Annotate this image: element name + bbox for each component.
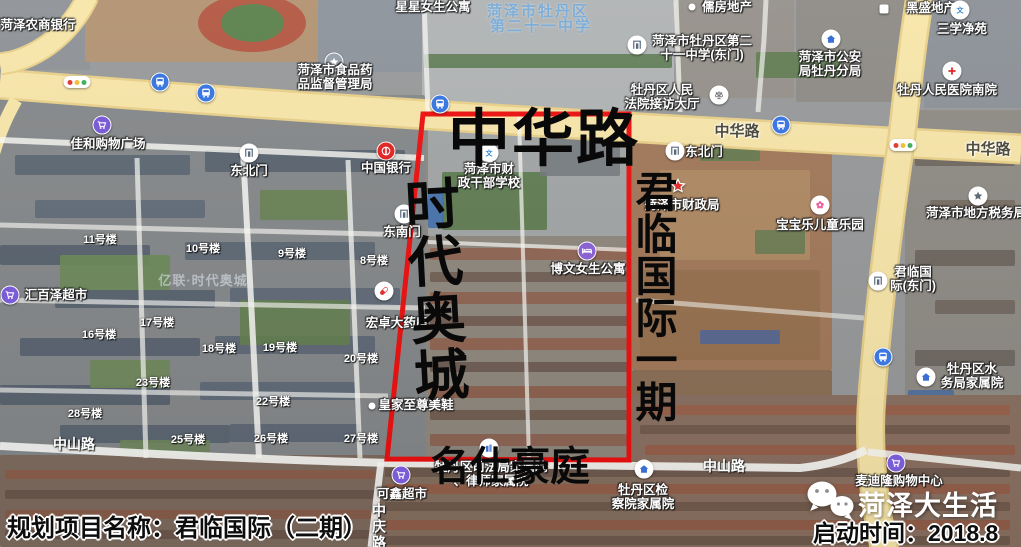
bus-icon xyxy=(151,73,170,92)
northeast-gate-west-label: 东北门 xyxy=(230,165,268,179)
building-label: 22号楼 xyxy=(256,393,290,409)
gate-icon xyxy=(869,272,888,291)
bowen-girls-apartment-label: 博文女生公寓 xyxy=(550,263,625,277)
road-label: 中华路 xyxy=(714,120,759,141)
dot-icon xyxy=(689,4,696,11)
heze-rural-commercial-bank-label: 菏泽农商银行 xyxy=(0,19,75,33)
xingxing-girls-apartment-label: 星星女生公寓 xyxy=(395,1,470,15)
bus-icon xyxy=(772,116,791,135)
annotation-shidai-aocheng: 时代奥城 xyxy=(386,174,478,406)
road-label: 中庆路 xyxy=(369,503,389,547)
cart-icon xyxy=(1,286,20,305)
gate-icon xyxy=(666,142,685,161)
bus-icon xyxy=(874,348,893,367)
building-label: 23号楼 xyxy=(136,374,170,390)
watermark-text: 亿联·时代奥城 xyxy=(158,270,247,289)
dot-icon xyxy=(369,403,376,410)
wechat-icon xyxy=(804,479,858,521)
cross-icon xyxy=(943,62,962,81)
house-icon xyxy=(822,30,841,49)
jiahe-shopping-plaza-label: 佳和购物广场 xyxy=(70,138,145,152)
annotation-mingshi-haoting: 名仕豪庭 xyxy=(430,434,590,492)
building-label: 16号楼 xyxy=(82,326,116,342)
gate-icon xyxy=(240,144,259,163)
cart-icon xyxy=(887,454,906,473)
food-drug-administration-label: 菏泽市食品药品监督管理局 xyxy=(297,64,372,92)
building-label: 18号楼 xyxy=(202,340,236,356)
rufang-realty-label: 儒房地产 xyxy=(702,1,752,15)
building-label: 26号楼 xyxy=(254,430,288,446)
star_white-icon xyxy=(969,187,988,206)
annotation-zhonghua-road: 中华路 xyxy=(448,88,640,178)
brand-watermark: 菏泽大生活 xyxy=(858,484,998,523)
public-security-mudan-branch-label: 菏泽市公安局牡丹分局 xyxy=(799,51,862,79)
building-label: 20号楼 xyxy=(344,350,378,366)
bed-icon xyxy=(578,242,597,261)
no21-middle-school-east-gate-label: 菏泽市牡丹区第二十一中学(东门) xyxy=(652,35,752,63)
bank-of-china-label: 中国银行 xyxy=(361,162,411,176)
boc-icon xyxy=(377,142,396,161)
bus-icon xyxy=(431,95,450,114)
traffic-icon xyxy=(890,139,917,151)
junlin-international-east-gate-label: 君临国际(东门) xyxy=(890,266,936,294)
satellite-map-canvas[interactable]: 菏泽农商银行星星女生公寓儒房地产黑盛地产菏泽市食品药品监督管理局菏泽市牡丹区第二… xyxy=(0,0,1021,547)
project-name-caption: 规划项目名称：君临国际（二期） xyxy=(7,508,367,543)
cart-icon xyxy=(392,466,411,485)
wen-icon: 文 xyxy=(951,1,970,20)
scales-icon xyxy=(710,86,729,105)
baobaole-children-playground-label: 宝宝乐儿童乐园 xyxy=(776,219,864,233)
building-label: 8号楼 xyxy=(360,252,388,268)
annotation-junlin-phase1: 君临国际一期 xyxy=(623,170,684,422)
building-label: 9号楼 xyxy=(278,245,306,261)
heisheng-realty-label: 黑盛地产 xyxy=(906,2,956,16)
gate-icon xyxy=(628,36,647,55)
procuratorate-family-compound-label: 牡丹区检察院家属院 xyxy=(612,484,675,512)
building-label: 11号楼 xyxy=(83,231,117,247)
square-icon xyxy=(880,5,889,14)
flower-icon xyxy=(811,196,830,215)
watermark-text: 第二十一中学 xyxy=(490,15,592,36)
road-label: 中山路 xyxy=(703,456,745,476)
building-label: 27号楼 xyxy=(344,430,378,446)
mudan-people-hospital-south-label: 牡丹人民医院南院 xyxy=(897,84,997,98)
kexin-supermarket-label: 可鑫超市 xyxy=(377,488,427,502)
local-tax-bureau-label: 菏泽市地方税务局 xyxy=(926,207,1021,221)
house-icon xyxy=(635,460,654,479)
water-bureau-family-compound-label: 牡丹区水务局家属院 xyxy=(941,363,1004,391)
sanxue-jingyuan-label: 三学净苑 xyxy=(937,23,987,37)
building-label: 19号楼 xyxy=(263,339,297,355)
traffic-icon xyxy=(64,76,91,88)
cart-icon xyxy=(93,116,112,135)
bus-icon xyxy=(197,84,216,103)
building-label: 28号楼 xyxy=(68,405,102,421)
building-label: 17号楼 xyxy=(140,314,174,330)
building-label: 10号楼 xyxy=(186,240,220,256)
northeast-gate-east-label: 东北门 xyxy=(685,146,723,160)
huibaize-supermarket-label: 汇百泽超市 xyxy=(25,289,88,303)
house-icon xyxy=(917,368,936,387)
svg-text:文: 文 xyxy=(956,6,964,15)
road-label: 中山路 xyxy=(53,434,95,454)
road-label: 中华路 xyxy=(965,138,1010,159)
building-label: 25号楼 xyxy=(171,431,205,447)
